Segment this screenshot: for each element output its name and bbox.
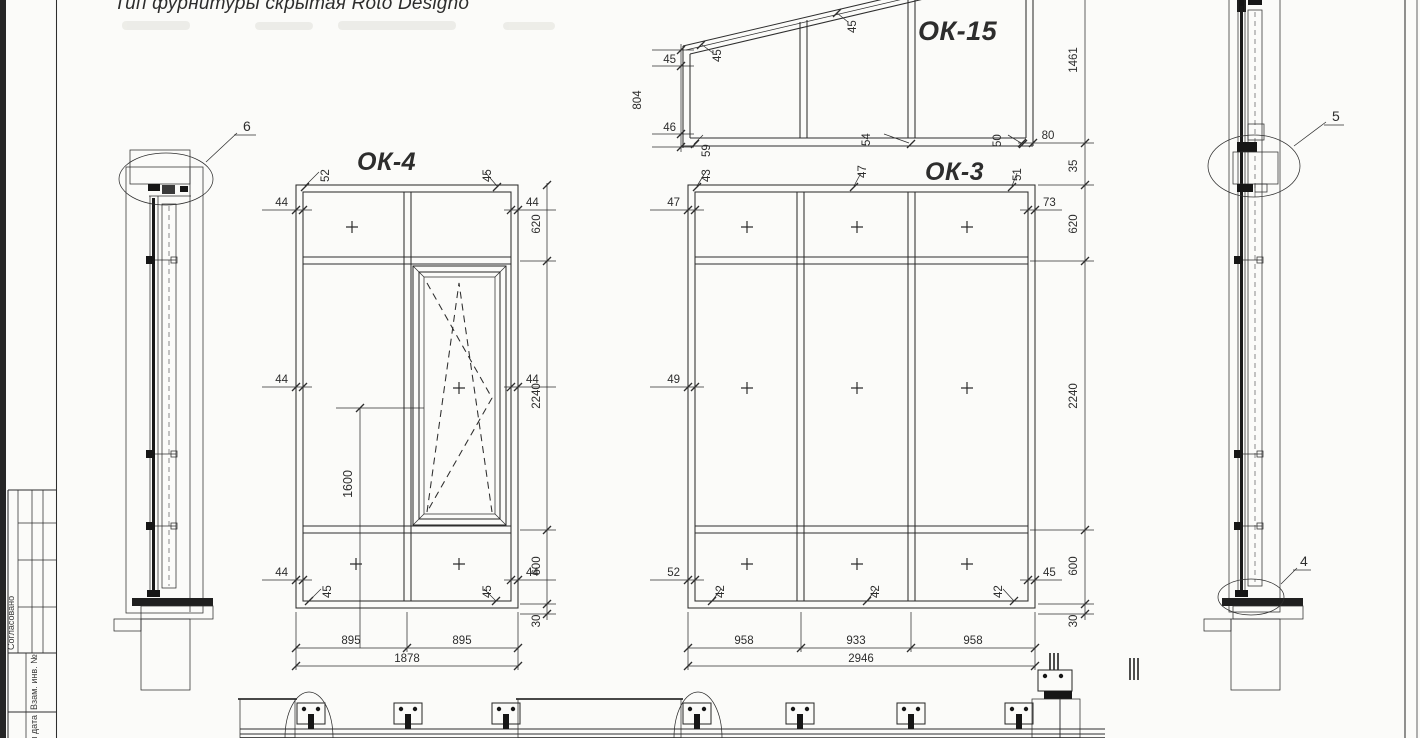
dim-label: 50 — [992, 134, 1004, 147]
titleblock-approved-label: Согласовано — [6, 596, 16, 650]
ok3-dimensions: 43 47 51 47 49 52 73 45 42 42 42 80 1461… — [650, 0, 1094, 670]
glass-center-marks — [741, 221, 973, 570]
dim-label: 600 — [1068, 556, 1080, 575]
dim-label: 44 — [275, 197, 288, 209]
titleblock-signdate-label: Подп. и дата — [29, 715, 39, 738]
corner-detail-plan — [1032, 653, 1138, 738]
title-block: Согласовано Взам. инв. № Подп. и дата — [6, 490, 56, 738]
dim-label: 80 — [1042, 130, 1055, 142]
glazing-section — [1240, 6, 1243, 590]
dim-label: 45 — [712, 49, 724, 62]
wall-section-right: 5 4 — [1204, 0, 1344, 690]
wall-plan-hatch — [518, 699, 681, 738]
drawing-sheet: Тип фурнитуры скрытая Roto Designo 6 ОК-… — [0, 0, 1420, 738]
dim-label: 42 — [715, 585, 727, 598]
callout-6-label: 6 — [243, 118, 251, 134]
window-ok3: ОК-3 — [688, 158, 1035, 608]
dim-label: 45 — [482, 169, 494, 182]
dim-label: 45 — [1043, 567, 1056, 579]
dim-label: 44 — [275, 567, 288, 579]
anchor-plate — [394, 703, 422, 729]
dim-label: 1461 — [1068, 47, 1080, 73]
insulation-plan — [1060, 699, 1080, 738]
anchor-plate — [683, 703, 711, 729]
sill-hatch — [141, 606, 213, 619]
dim-label: 52 — [667, 567, 680, 579]
dim-label: 804 — [632, 90, 644, 110]
wall-plan-hatch — [240, 699, 295, 738]
glass-center-marks — [346, 221, 465, 570]
dim-label: 2240 — [531, 383, 543, 409]
dim-label: 46 — [663, 122, 676, 134]
dim-label: 620 — [1068, 214, 1080, 233]
dim-label: 52 — [320, 169, 332, 182]
wall-anchor-hatch — [1233, 152, 1278, 184]
foundation-hatch — [141, 619, 190, 690]
anchor-plate — [297, 703, 325, 729]
dim-label: 45 — [482, 585, 494, 598]
dim-label: 59 — [701, 144, 713, 157]
glazing-clips — [146, 256, 177, 530]
dim-label: 30 — [1068, 615, 1080, 628]
dim-label: 35 — [1068, 160, 1080, 173]
dim-label: 2240 — [1068, 383, 1080, 409]
dim-label: 44 — [526, 197, 539, 209]
ok3-title: ОК-3 — [925, 158, 984, 186]
sill-board — [1222, 598, 1303, 606]
top-note: Тип фурнитуры скрытая Roto Designo — [114, 0, 555, 30]
titleblock-substitute-label: Взам. инв. № — [29, 654, 39, 710]
dim-label: 49 — [667, 374, 680, 386]
dim-label: 73 — [1043, 197, 1056, 209]
window-ok4: ОК-4 — [296, 148, 518, 608]
dim-label: 44 — [275, 374, 288, 386]
hardware-type-note: Тип фурнитуры скрытая Roto Designo — [114, 0, 469, 14]
dim-label: 600 — [531, 556, 543, 575]
foundation-hatch — [1231, 619, 1280, 690]
callout-5-label: 5 — [1332, 108, 1340, 124]
drawing-border — [0, 0, 1417, 738]
wall-section-left: 6 — [114, 118, 256, 690]
sill-board — [132, 598, 213, 606]
ok4-title: ОК-4 — [357, 148, 416, 176]
dim-label: 42 — [993, 585, 1005, 598]
turn-opening-symbol — [427, 283, 492, 512]
ok4-sash — [413, 266, 506, 525]
dim-label: 47 — [857, 165, 869, 178]
dim-label: 1600 — [341, 470, 355, 498]
dim-label: 54 — [861, 133, 873, 146]
dim-label: 933 — [846, 635, 865, 647]
dim-label: 30 — [531, 615, 543, 628]
dim-label: 895 — [452, 635, 471, 647]
anchor-plate — [492, 703, 520, 729]
dim-label: 45 — [847, 20, 859, 33]
dim-label: 43 — [701, 169, 713, 182]
dim-label: 958 — [734, 635, 753, 647]
cad-drawing: Тип фурнитуры скрытая Roto Designo 6 ОК-… — [0, 0, 1420, 738]
dim-label: 45 — [322, 585, 334, 598]
anchor-plate — [786, 703, 814, 729]
dim-label: 1878 — [394, 653, 420, 665]
dim-label: 47 — [667, 197, 680, 209]
ledge-hatch — [1204, 619, 1231, 631]
dim-label: 51 — [1012, 168, 1024, 181]
ok4-dimensions: 52 45 44 44 44 44 44 44 620 2240 600 30 … — [262, 169, 556, 670]
anchor-plates — [297, 703, 1033, 729]
dim-label: 958 — [963, 635, 982, 647]
ledge-hatch — [114, 619, 141, 631]
dim-label: 2946 — [848, 653, 874, 665]
callout-4-label: 4 — [1300, 553, 1308, 569]
dim-label: 895 — [341, 635, 360, 647]
scan-artifact — [122, 21, 555, 30]
anchor-plate — [897, 703, 925, 729]
tilt-opening-symbol — [427, 283, 492, 512]
dim-label: 620 — [531, 214, 543, 233]
ok15-title: ОК-15 — [918, 16, 998, 46]
anchor-plate — [1005, 703, 1033, 729]
dim-label: 45 — [663, 54, 676, 66]
dim-label: 42 — [870, 585, 882, 598]
